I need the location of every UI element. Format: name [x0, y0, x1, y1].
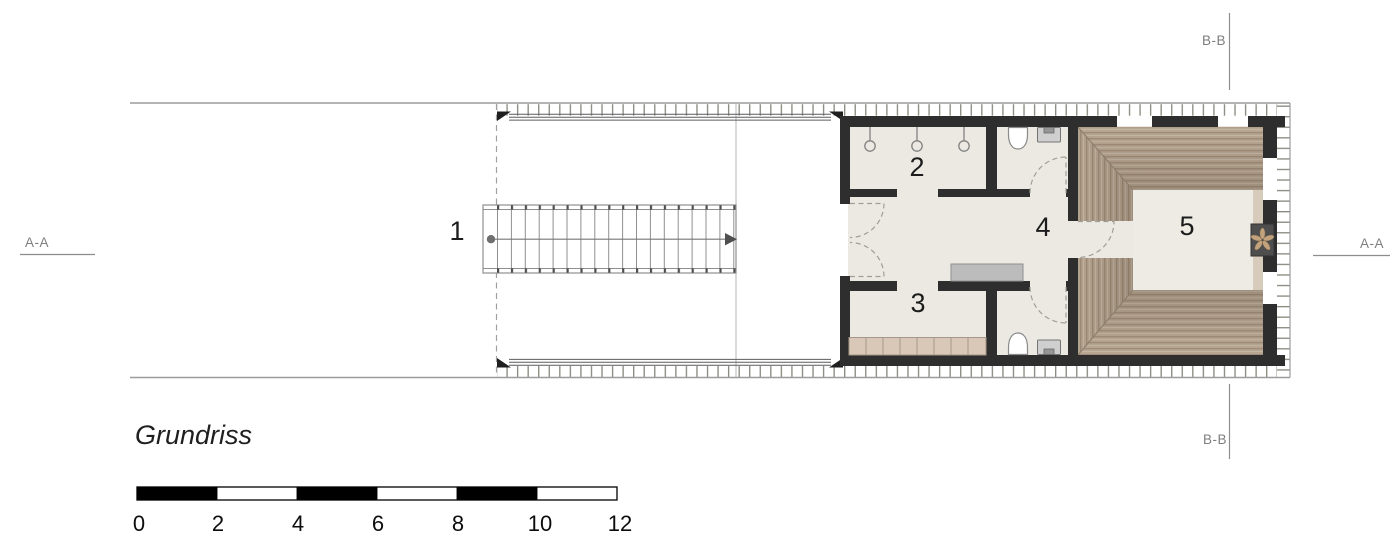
- staircase: [483, 205, 737, 273]
- section-marker-bb-bottom: B-B: [1203, 432, 1227, 447]
- section-marker-aa-right: A-A: [1360, 236, 1384, 251]
- scale-bar: [137, 487, 617, 500]
- section-marker-aa-left: A-A: [25, 235, 49, 250]
- wall-room5-left-upper: [1068, 116, 1078, 221]
- drawing-title: Grundriss: [135, 420, 252, 451]
- room5-door-passage-floor: [1068, 221, 1134, 258]
- sink-icon-top: [1038, 128, 1061, 143]
- room-label-4: 4: [1035, 212, 1050, 243]
- toilet-icon-bottom: [1009, 333, 1028, 355]
- scale-tick-6: 6: [372, 511, 384, 537]
- scale-tick-12: 12: [608, 511, 632, 537]
- wall-room5-left-lower: [1068, 258, 1078, 366]
- toilet-icon-top: [1009, 128, 1028, 150]
- scale-tick-0: 0: [133, 511, 145, 537]
- wall-bath2-left: [986, 281, 997, 366]
- wall-room3-top: [848, 281, 897, 291]
- wall-bottom: [840, 355, 1285, 366]
- scale-tick-8: 8: [452, 511, 464, 537]
- room-label-1: 1: [449, 216, 464, 247]
- scale-tick-4: 4: [292, 511, 304, 537]
- floor-plan-canvas: 1 2 3 4 5 A-A A-A B-B B-B Grundriss 0 2 …: [0, 0, 1400, 559]
- sideboard: [951, 264, 1023, 281]
- floor-plan-drawing: [0, 0, 1400, 559]
- scale-tick-10: 10: [528, 511, 552, 537]
- wall-room5-right: [1263, 116, 1277, 158]
- wall-bath1-left: [986, 116, 997, 197]
- wall-room2-bottom: [848, 189, 897, 197]
- room-label-2: 2: [909, 152, 924, 183]
- room-label-3: 3: [910, 288, 925, 319]
- section-marker-bb-top: B-B: [1202, 33, 1226, 48]
- stove-with-plant-icon: [1250, 224, 1275, 256]
- sink-icon-bottom: [1038, 340, 1061, 355]
- wardrobe: [849, 338, 986, 356]
- scale-tick-2: 2: [212, 511, 224, 537]
- room-label-5: 5: [1179, 211, 1194, 242]
